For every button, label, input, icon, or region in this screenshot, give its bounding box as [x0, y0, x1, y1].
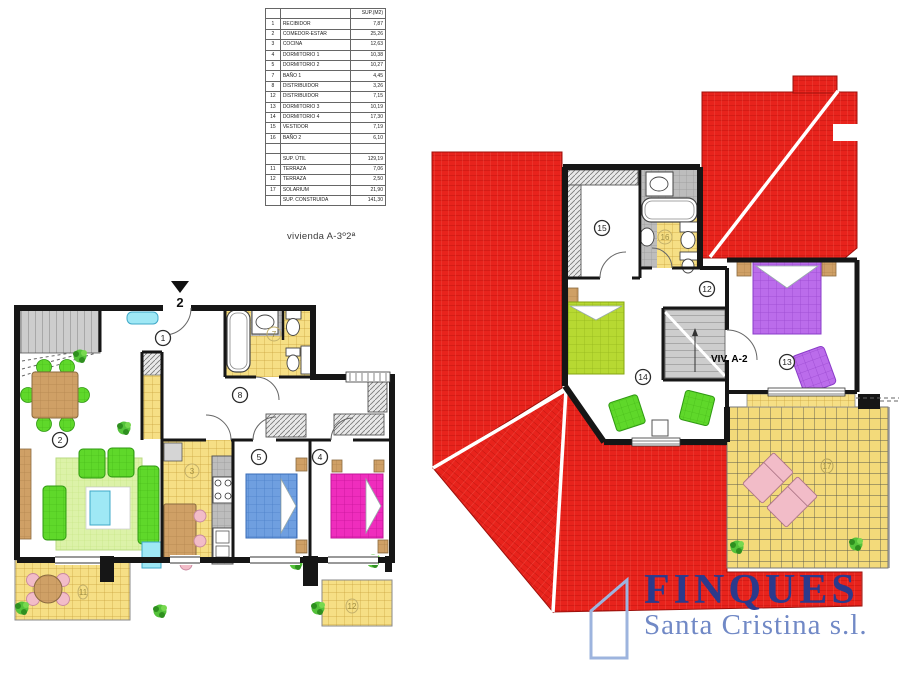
summary-area: 2,50	[350, 175, 386, 185]
bedroom-purple	[737, 262, 837, 395]
nightstand	[374, 460, 384, 472]
table-row: 7 BAÑO 1 4,45	[266, 71, 386, 81]
table-row: 4 DORMITORIO 1 10,38	[266, 50, 386, 60]
nightstand	[378, 540, 388, 553]
summary-area: 21,90	[350, 185, 386, 195]
room-area: 3,26	[350, 81, 386, 91]
coffee-table	[90, 491, 110, 525]
kitchen-table	[164, 504, 196, 560]
room-number: 14	[266, 112, 281, 122]
svg-text:3: 3	[190, 467, 195, 476]
table-row: 1 RECIBIDOR 7,87	[266, 19, 386, 29]
summary-area: 7,06	[350, 164, 386, 174]
room-number: 8	[266, 81, 281, 91]
stairs-upper	[665, 310, 725, 378]
table-row: 16 BAÑO 2 6,10	[266, 133, 386, 143]
room-name: BAÑO 1	[280, 71, 350, 81]
room-area: 6,10	[350, 133, 386, 143]
svg-text:4: 4	[318, 452, 323, 462]
room-label-solarium: 17	[821, 459, 833, 473]
table-row: 5 DORMITORIO 2 10,27	[266, 60, 386, 70]
table-row: 8 DISTRIBUIDOR 3,26	[266, 81, 386, 91]
room-number: 11	[266, 164, 281, 174]
area-table-summary: SUP. ÚTIL 129,19 11 TERRAZA 7,06 12 TERR…	[266, 154, 386, 206]
room-name: COMEDOR-ESTAR	[280, 29, 350, 39]
room-area: 25,26	[350, 29, 386, 39]
room-label-recibidor: 1	[156, 331, 171, 346]
house-outline-icon	[586, 574, 638, 660]
hall-bench	[127, 312, 158, 324]
room-number: 1	[266, 19, 281, 29]
table-row: 12 TERRAZA 2,50	[266, 175, 386, 185]
room-area	[350, 144, 386, 154]
room-label-dorm4: 14	[636, 370, 651, 385]
room-label-dorm2: 5	[252, 450, 267, 465]
room-name: BAÑO 2	[280, 133, 350, 143]
sideboard	[19, 449, 31, 539]
summary-label: TERRAZA	[280, 164, 350, 174]
room-name: DISTRIBUIDOR	[280, 92, 350, 102]
table-row: 3 COCINA 12,63	[266, 40, 386, 50]
room-area: 12,63	[350, 40, 386, 50]
tv-unit	[142, 542, 161, 568]
area-table-header-row: SUP.(M2)	[266, 9, 386, 19]
table-row: 17 SOLARIUM 21,90	[266, 185, 386, 195]
side-table	[652, 420, 668, 436]
room-area: 7,19	[350, 123, 386, 133]
svg-text:14: 14	[638, 372, 648, 382]
wardrobe	[334, 414, 384, 435]
upper-floor-plan: VIV. A-2 15 16 12 14 13 17	[432, 76, 899, 612]
unit-label: VIV. A-2	[711, 354, 748, 365]
toilet	[286, 310, 301, 319]
bathtub	[227, 310, 250, 372]
room-label-terraza-a: 11	[78, 585, 88, 599]
svg-text:12: 12	[702, 284, 712, 294]
room-name: VESTIDOR	[280, 123, 350, 133]
summary-area: 141,30	[350, 196, 386, 206]
bedroom-blue	[246, 414, 307, 553]
room-area: 7,15	[350, 92, 386, 102]
summary-label: SUP. ÚTIL	[280, 154, 350, 164]
dining-table-set	[21, 360, 90, 432]
nightstand	[822, 262, 836, 276]
nightstand	[737, 262, 751, 276]
room-area: 10,38	[350, 50, 386, 60]
room-number: 5	[266, 60, 281, 70]
room-label-vestidor: 15	[595, 221, 610, 236]
fridge	[164, 443, 182, 461]
room-label-terraza-b: 12	[346, 599, 358, 613]
room-number: 12	[266, 175, 281, 185]
room-label-distribuidor1: 8	[233, 388, 248, 403]
room-number: 13	[266, 102, 281, 112]
room-label-dorm1: 4	[313, 450, 328, 465]
agency-logo: FINQUES Santa Cristina s.l.	[586, 568, 868, 660]
room-name: DORMITORIO 4	[280, 112, 350, 122]
table-row: 15 VESTIDOR 7,19	[266, 123, 386, 133]
roof-plane-top-right	[702, 92, 857, 258]
armchair	[679, 390, 715, 426]
entrance-arrow-icon	[171, 281, 189, 293]
svg-text:2: 2	[176, 295, 183, 310]
toilet-round	[640, 228, 654, 246]
svg-text:2: 2	[58, 435, 63, 445]
kitchen-chair	[194, 535, 206, 547]
svg-text:12: 12	[348, 602, 357, 611]
svg-text:16: 16	[661, 233, 670, 242]
entrance-marker: 2	[171, 281, 189, 310]
room-name: RECIBIDOR	[280, 19, 350, 29]
nightstand	[296, 458, 307, 471]
room-name: COCINA	[280, 40, 350, 50]
room-label-distribuidor2: 12	[700, 282, 715, 297]
armchair	[608, 394, 646, 432]
roof-vent	[858, 394, 880, 409]
room-label-dorm3: 13	[780, 355, 795, 370]
svg-text:8: 8	[238, 390, 243, 400]
armchair-purple	[791, 345, 837, 394]
room-number: 15	[266, 123, 281, 133]
lower-floor-plan: 2 1 2 3 5 4 7 8	[15, 281, 392, 626]
room-number	[266, 144, 281, 154]
wardrobe	[368, 380, 387, 412]
room-area: 4,45	[350, 71, 386, 81]
room-number: 17	[266, 185, 281, 195]
summary-area: 129,19	[350, 154, 386, 164]
svg-text:1: 1	[161, 333, 166, 343]
wall-stub	[100, 556, 114, 582]
room-number: 3	[266, 40, 281, 50]
svg-text:15: 15	[597, 223, 607, 233]
sofa-left	[43, 486, 66, 540]
room-name: DORMITORIO 1	[280, 50, 350, 60]
room-name: DORMITORIO 2	[280, 60, 350, 70]
room-label-salon: 2	[53, 433, 68, 448]
svg-text:17: 17	[823, 462, 832, 471]
room-number: 2	[266, 29, 281, 39]
room-number: 4	[266, 50, 281, 60]
room-number: 7	[266, 71, 281, 81]
logo-name: FINQUES	[644, 568, 868, 612]
summary-label: SOLARIUM	[280, 185, 350, 195]
bedroom-magenta	[331, 380, 388, 553]
summary-label: SUP. CONSTRUIDA	[280, 196, 350, 206]
wall-stub	[385, 556, 392, 572]
area-table-rooms: 1 RECIBIDOR 7,87 2 COMEDOR-ESTAR 25,26 3…	[266, 19, 386, 154]
kitchen-chair	[194, 510, 206, 522]
room-number	[266, 154, 281, 164]
table-row	[266, 144, 386, 154]
room-area: 10,19	[350, 102, 386, 112]
hall-closet-hatch	[143, 353, 162, 375]
table-row: 11 TERRAZA 7,06	[266, 164, 386, 174]
roof-chimney	[793, 76, 837, 93]
area-table-header: SUP.(M2)	[350, 9, 386, 19]
wall-stub	[303, 556, 318, 586]
svg-text:11: 11	[79, 588, 88, 597]
armchair	[79, 449, 105, 478]
room-area: 10,27	[350, 60, 386, 70]
room-name: DISTRIBUIDOR	[280, 81, 350, 91]
area-table: SUP.(M2) 1 RECIBIDOR 7,87 2 COMEDOR-ESTA…	[265, 8, 386, 206]
roof-step-cut	[833, 124, 859, 141]
room-number: 16	[266, 133, 281, 143]
nightstand	[296, 540, 307, 553]
svg-text:5: 5	[257, 452, 262, 462]
logo-subname: Santa Cristina s.l.	[644, 610, 868, 640]
floor-plan-sheet: 2 1 2 3 5 4 7 8	[0, 0, 900, 675]
dwelling-caption: vivienda A-3º2ª	[287, 231, 356, 242]
nightstand	[332, 460, 342, 472]
summary-label: TERRAZA	[280, 175, 350, 185]
table-row: 12 DISTRIBUIDOR 7,15	[266, 92, 386, 102]
armchair	[108, 448, 134, 477]
toilet	[680, 222, 698, 232]
table-row: 13 DORMITORIO 3 10,19	[266, 102, 386, 112]
table-row: 2 COMEDOR-ESTAR 25,26	[266, 29, 386, 39]
room-area: 17,30	[350, 112, 386, 122]
room-area: 7,87	[350, 19, 386, 29]
room-name	[280, 144, 350, 154]
room-name: DORMITORIO 3	[280, 102, 350, 112]
svg-text:7: 7	[272, 330, 277, 339]
table-row: SUP. CONSTRUIDA 141,30	[266, 196, 386, 206]
room-number	[266, 196, 281, 206]
room-number: 12	[266, 92, 281, 102]
table-row: SUP. ÚTIL 129,19	[266, 154, 386, 164]
svg-text:13: 13	[782, 357, 792, 367]
living-room-furniture	[19, 448, 161, 568]
table-row: 14 DORMITORIO 4 17,30	[266, 112, 386, 122]
sofa-right	[138, 466, 159, 544]
